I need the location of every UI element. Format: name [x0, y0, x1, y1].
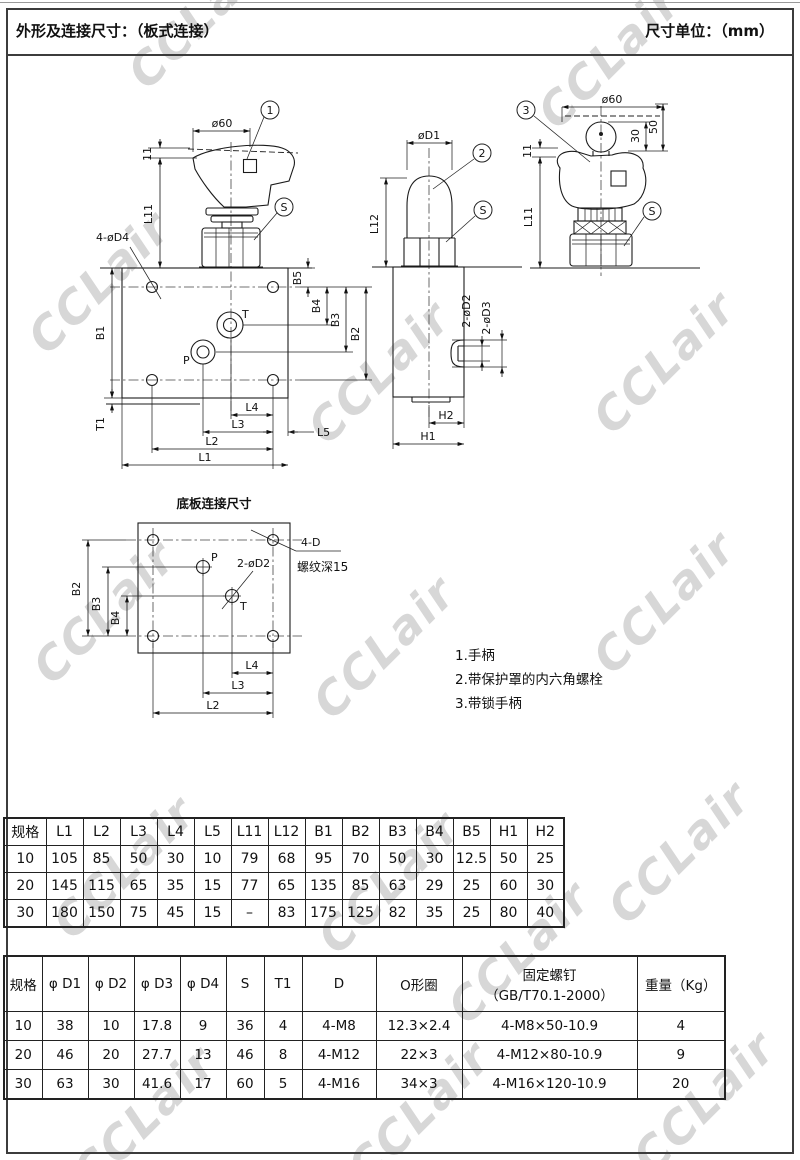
- technical-drawing: 1 S ø60 11 L11 4-øD4 T P B5 B4 B3 B2: [0, 56, 800, 736]
- port-t-label: T: [241, 308, 249, 321]
- table-cell: 27.7: [134, 1041, 180, 1070]
- datasheet-page: { "page": { "title_left": "外形及连接尺寸：（板式连接…: [0, 0, 800, 1160]
- column-header: B5: [453, 818, 490, 846]
- column-header: 重量（Kg）: [637, 956, 725, 1012]
- table-cell: 10: [88, 1012, 134, 1041]
- port-p-label: P: [183, 354, 190, 367]
- dim-b4: B4: [109, 611, 122, 626]
- table-cell: 22×3: [376, 1041, 462, 1070]
- table-cell: 85: [83, 846, 120, 873]
- dim-b5: B5: [291, 271, 304, 286]
- column-header: O形圈: [376, 956, 462, 1012]
- callout-s: S: [649, 205, 656, 218]
- table-cell: 77: [231, 873, 268, 900]
- header-row: 规格L1L2L3L4L5L11L12B1B2B3B4B5H1H2: [4, 818, 564, 846]
- table-cell: 20: [4, 873, 46, 900]
- callout-1: 1: [267, 104, 274, 117]
- table-cell: 68: [268, 846, 305, 873]
- subplate-title: 底板连接尺寸: [176, 496, 252, 511]
- table-row: 10381017.893644-M812.3×2.44-M8×50-10.94: [4, 1012, 725, 1041]
- table-cell: 135: [305, 873, 342, 900]
- table-cell: 30: [4, 900, 46, 928]
- dim-ports-d2: 2-øD2: [237, 557, 270, 570]
- table-cell: 46: [226, 1041, 264, 1070]
- column-header: L4: [157, 818, 194, 846]
- note-handle: 1.手柄: [455, 644, 603, 668]
- table-cell: 12.5: [453, 846, 490, 873]
- page-title: 外形及连接尺寸：（板式连接）: [16, 20, 219, 41]
- column-header: B3: [379, 818, 416, 846]
- side-view: øD1 L12 2-øD2 2-øD3 H2 H1 2 S: [368, 129, 522, 449]
- column-header: 固定螺钉 （GB/T70.1-2000）: [462, 956, 637, 1012]
- table-cell: 80: [490, 900, 527, 928]
- table-cell: 4-M8×50-10.9: [462, 1012, 637, 1041]
- column-header: L3: [120, 818, 157, 846]
- table-row: 30633041.6176054-M1634×34-M16×120-10.920: [4, 1070, 725, 1100]
- dim-l4: L4: [245, 659, 258, 672]
- table-cell: 145: [46, 873, 83, 900]
- dim-b1: B1: [94, 326, 107, 341]
- column-header: L5: [194, 818, 231, 846]
- column-header: L2: [83, 818, 120, 846]
- callout-2: 2: [479, 147, 486, 160]
- table-cell: 30: [157, 846, 194, 873]
- dim-ports-d2: 2-øD2: [460, 294, 473, 327]
- table-cell: 115: [83, 873, 120, 900]
- table-cell: 38: [42, 1012, 88, 1041]
- table-cell: 34×3: [376, 1070, 462, 1100]
- table-cell: 36: [226, 1012, 264, 1041]
- column-header: φ D2: [88, 956, 134, 1012]
- table-cell: 125: [342, 900, 379, 928]
- column-header: H1: [490, 818, 527, 846]
- dim-l1: L1: [198, 451, 211, 464]
- table-cell: 63: [42, 1070, 88, 1100]
- table-cell: 50: [490, 846, 527, 873]
- dim-b2: B2: [349, 327, 362, 342]
- table-cell: 25: [453, 873, 490, 900]
- dim-dia60: ø60: [602, 93, 623, 106]
- table-cell: 50: [379, 846, 416, 873]
- table-cell: 35: [416, 900, 453, 928]
- table-cell: 65: [268, 873, 305, 900]
- table-cell: 4: [264, 1012, 302, 1041]
- dim-h2: H2: [438, 409, 453, 422]
- table-cell: 79: [231, 846, 268, 873]
- table-cell: 95: [305, 846, 342, 873]
- thread-label: 4-D: [301, 536, 320, 549]
- dim-l2: L2: [205, 435, 218, 448]
- table-cell: –: [231, 900, 268, 928]
- table-cell: 4-M12: [302, 1041, 376, 1070]
- table-cell: 25: [453, 900, 490, 928]
- dim-b3: B3: [90, 597, 103, 612]
- table-cell: 41.6: [134, 1070, 180, 1100]
- port-p-label: P: [211, 551, 218, 564]
- callout-s: S: [480, 204, 487, 217]
- subplate-view: 底板连接尺寸 P T 2-øD2 4-D 螺纹深15 B2 B3 B4 L4 L…: [70, 496, 348, 718]
- locked-handle-view: ø60 3 S 30 50 11 L11: [517, 93, 700, 276]
- table-cell: 8: [264, 1041, 302, 1070]
- dim-h1: H1: [420, 430, 435, 443]
- dim-bolt-holes: 4-øD4: [96, 231, 129, 244]
- table-cell: 60: [490, 873, 527, 900]
- table-cell: 4-M12×80-10.9: [462, 1041, 637, 1070]
- column-header: L12: [268, 818, 305, 846]
- table-cell: 4: [637, 1012, 725, 1041]
- dim-l11: L11: [522, 207, 535, 227]
- table-cell: 50: [120, 846, 157, 873]
- dim-b4: B4: [310, 299, 323, 314]
- table-cell: 4-M16: [302, 1070, 376, 1100]
- table-cell: 180: [46, 900, 83, 928]
- table-cell: 30: [527, 873, 564, 900]
- dim-b2: B2: [70, 582, 83, 597]
- callout-3: 3: [523, 104, 530, 117]
- column-header: S: [226, 956, 264, 1012]
- table-cell: 35: [157, 873, 194, 900]
- dim-50: 50: [647, 120, 660, 134]
- table-cell: 4-M8: [302, 1012, 376, 1041]
- table-cell: 20: [4, 1041, 42, 1070]
- table-row: 201451156535157765135856329256030: [4, 873, 564, 900]
- table-cell: 85: [342, 873, 379, 900]
- table-cell: 13: [180, 1041, 226, 1070]
- dim-11: 11: [521, 144, 534, 158]
- table-cell: 20: [88, 1041, 134, 1070]
- dim-dia60: ø60: [212, 117, 233, 130]
- table-row: 101058550301079689570503012.55025: [4, 846, 564, 873]
- column-header: B4: [416, 818, 453, 846]
- table-cell: 30: [416, 846, 453, 873]
- legend-notes: 1.手柄 2.带保护罩的内六角螺栓 3.带锁手柄: [455, 644, 603, 716]
- dim-b3: B3: [329, 313, 342, 328]
- table-cell: 30: [4, 1070, 42, 1100]
- column-header: 规格: [4, 818, 46, 846]
- note-locking-handle: 3.带锁手柄: [455, 692, 603, 716]
- port-t-label: T: [239, 600, 247, 613]
- header-row: 规格φ D1φ D2φ D3φ D4ST1DO形圈固定螺钉 （GB/T70.1-…: [4, 956, 725, 1012]
- table-cell: 4-M16×120-10.9: [462, 1070, 637, 1100]
- table-cell: 75: [120, 900, 157, 928]
- table-cell: 5: [264, 1070, 302, 1100]
- dim-l11: L11: [142, 204, 155, 224]
- dim-l3: L3: [231, 418, 244, 431]
- units-label: 尺寸单位：（mm）: [645, 20, 774, 41]
- table-cell: 17.8: [134, 1012, 180, 1041]
- table-cell: 46: [42, 1041, 88, 1070]
- front-view: 1 S ø60 11 L11 4-øD4 T P B5 B4 B3 B2: [94, 101, 372, 469]
- column-header: B2: [342, 818, 379, 846]
- table-cell: 15: [194, 873, 231, 900]
- table-cell: 83: [268, 900, 305, 928]
- table-cell: 9: [180, 1012, 226, 1041]
- column-header: D: [302, 956, 376, 1012]
- dim-t1: T1: [94, 417, 107, 432]
- table-cell: 40: [527, 900, 564, 928]
- table-cell: 150: [83, 900, 120, 928]
- dim-l5: L5: [317, 426, 330, 439]
- table-cell: 175: [305, 900, 342, 928]
- column-header: L1: [46, 818, 83, 846]
- dim-ports-d3: 2-øD3: [480, 301, 493, 334]
- table-cell: 10: [4, 846, 46, 873]
- table-cell: 12.3×2.4: [376, 1012, 462, 1041]
- table-cell: 63: [379, 873, 416, 900]
- dim-l4: L4: [245, 401, 258, 414]
- column-header: φ D1: [42, 956, 88, 1012]
- dim-l12: L12: [368, 214, 381, 234]
- table-cell: 82: [379, 900, 416, 928]
- dim-l3: L3: [231, 679, 244, 692]
- fasteners-table: 规格φ D1φ D2φ D3φ D4ST1DO形圈固定螺钉 （GB/T70.1-…: [3, 955, 726, 1100]
- table-cell: 15: [194, 900, 231, 928]
- table-cell: 30: [88, 1070, 134, 1100]
- table-cell: 70: [342, 846, 379, 873]
- table-cell: 17: [180, 1070, 226, 1100]
- thread-depth-label: 螺纹深15: [297, 560, 348, 574]
- table-cell: 10: [194, 846, 231, 873]
- column-header: H2: [527, 818, 564, 846]
- column-header: φ D3: [134, 956, 180, 1012]
- table-row: 20462027.7134684-M1222×34-M12×80-10.99: [4, 1041, 725, 1070]
- table-cell: 60: [226, 1070, 264, 1100]
- table-cell: 45: [157, 900, 194, 928]
- table-row: 30180150754515–831751258235258040: [4, 900, 564, 928]
- dim-30: 30: [629, 129, 642, 143]
- column-header: B1: [305, 818, 342, 846]
- note-protected-bolt: 2.带保护罩的内六角螺栓: [455, 668, 603, 692]
- table-cell: 65: [120, 873, 157, 900]
- callout-s: S: [281, 201, 288, 214]
- table-cell: 9: [637, 1041, 725, 1070]
- column-header: φ D4: [180, 956, 226, 1012]
- column-header: T1: [264, 956, 302, 1012]
- page-top-edge: [0, 2, 800, 3]
- dim-l2: L2: [206, 699, 219, 712]
- column-header: L11: [231, 818, 268, 846]
- table-cell: 10: [4, 1012, 42, 1041]
- column-header: 规格: [4, 956, 42, 1012]
- table-cell: 105: [46, 846, 83, 873]
- dim-11: 11: [141, 147, 154, 161]
- table-cell: 29: [416, 873, 453, 900]
- table-cell: 20: [637, 1070, 725, 1100]
- dim-dia-d1: øD1: [418, 129, 440, 142]
- table-cell: 25: [527, 846, 564, 873]
- dimensions-table: 规格L1L2L3L4L5L11L12B1B2B3B4B5H1H210105855…: [3, 817, 565, 928]
